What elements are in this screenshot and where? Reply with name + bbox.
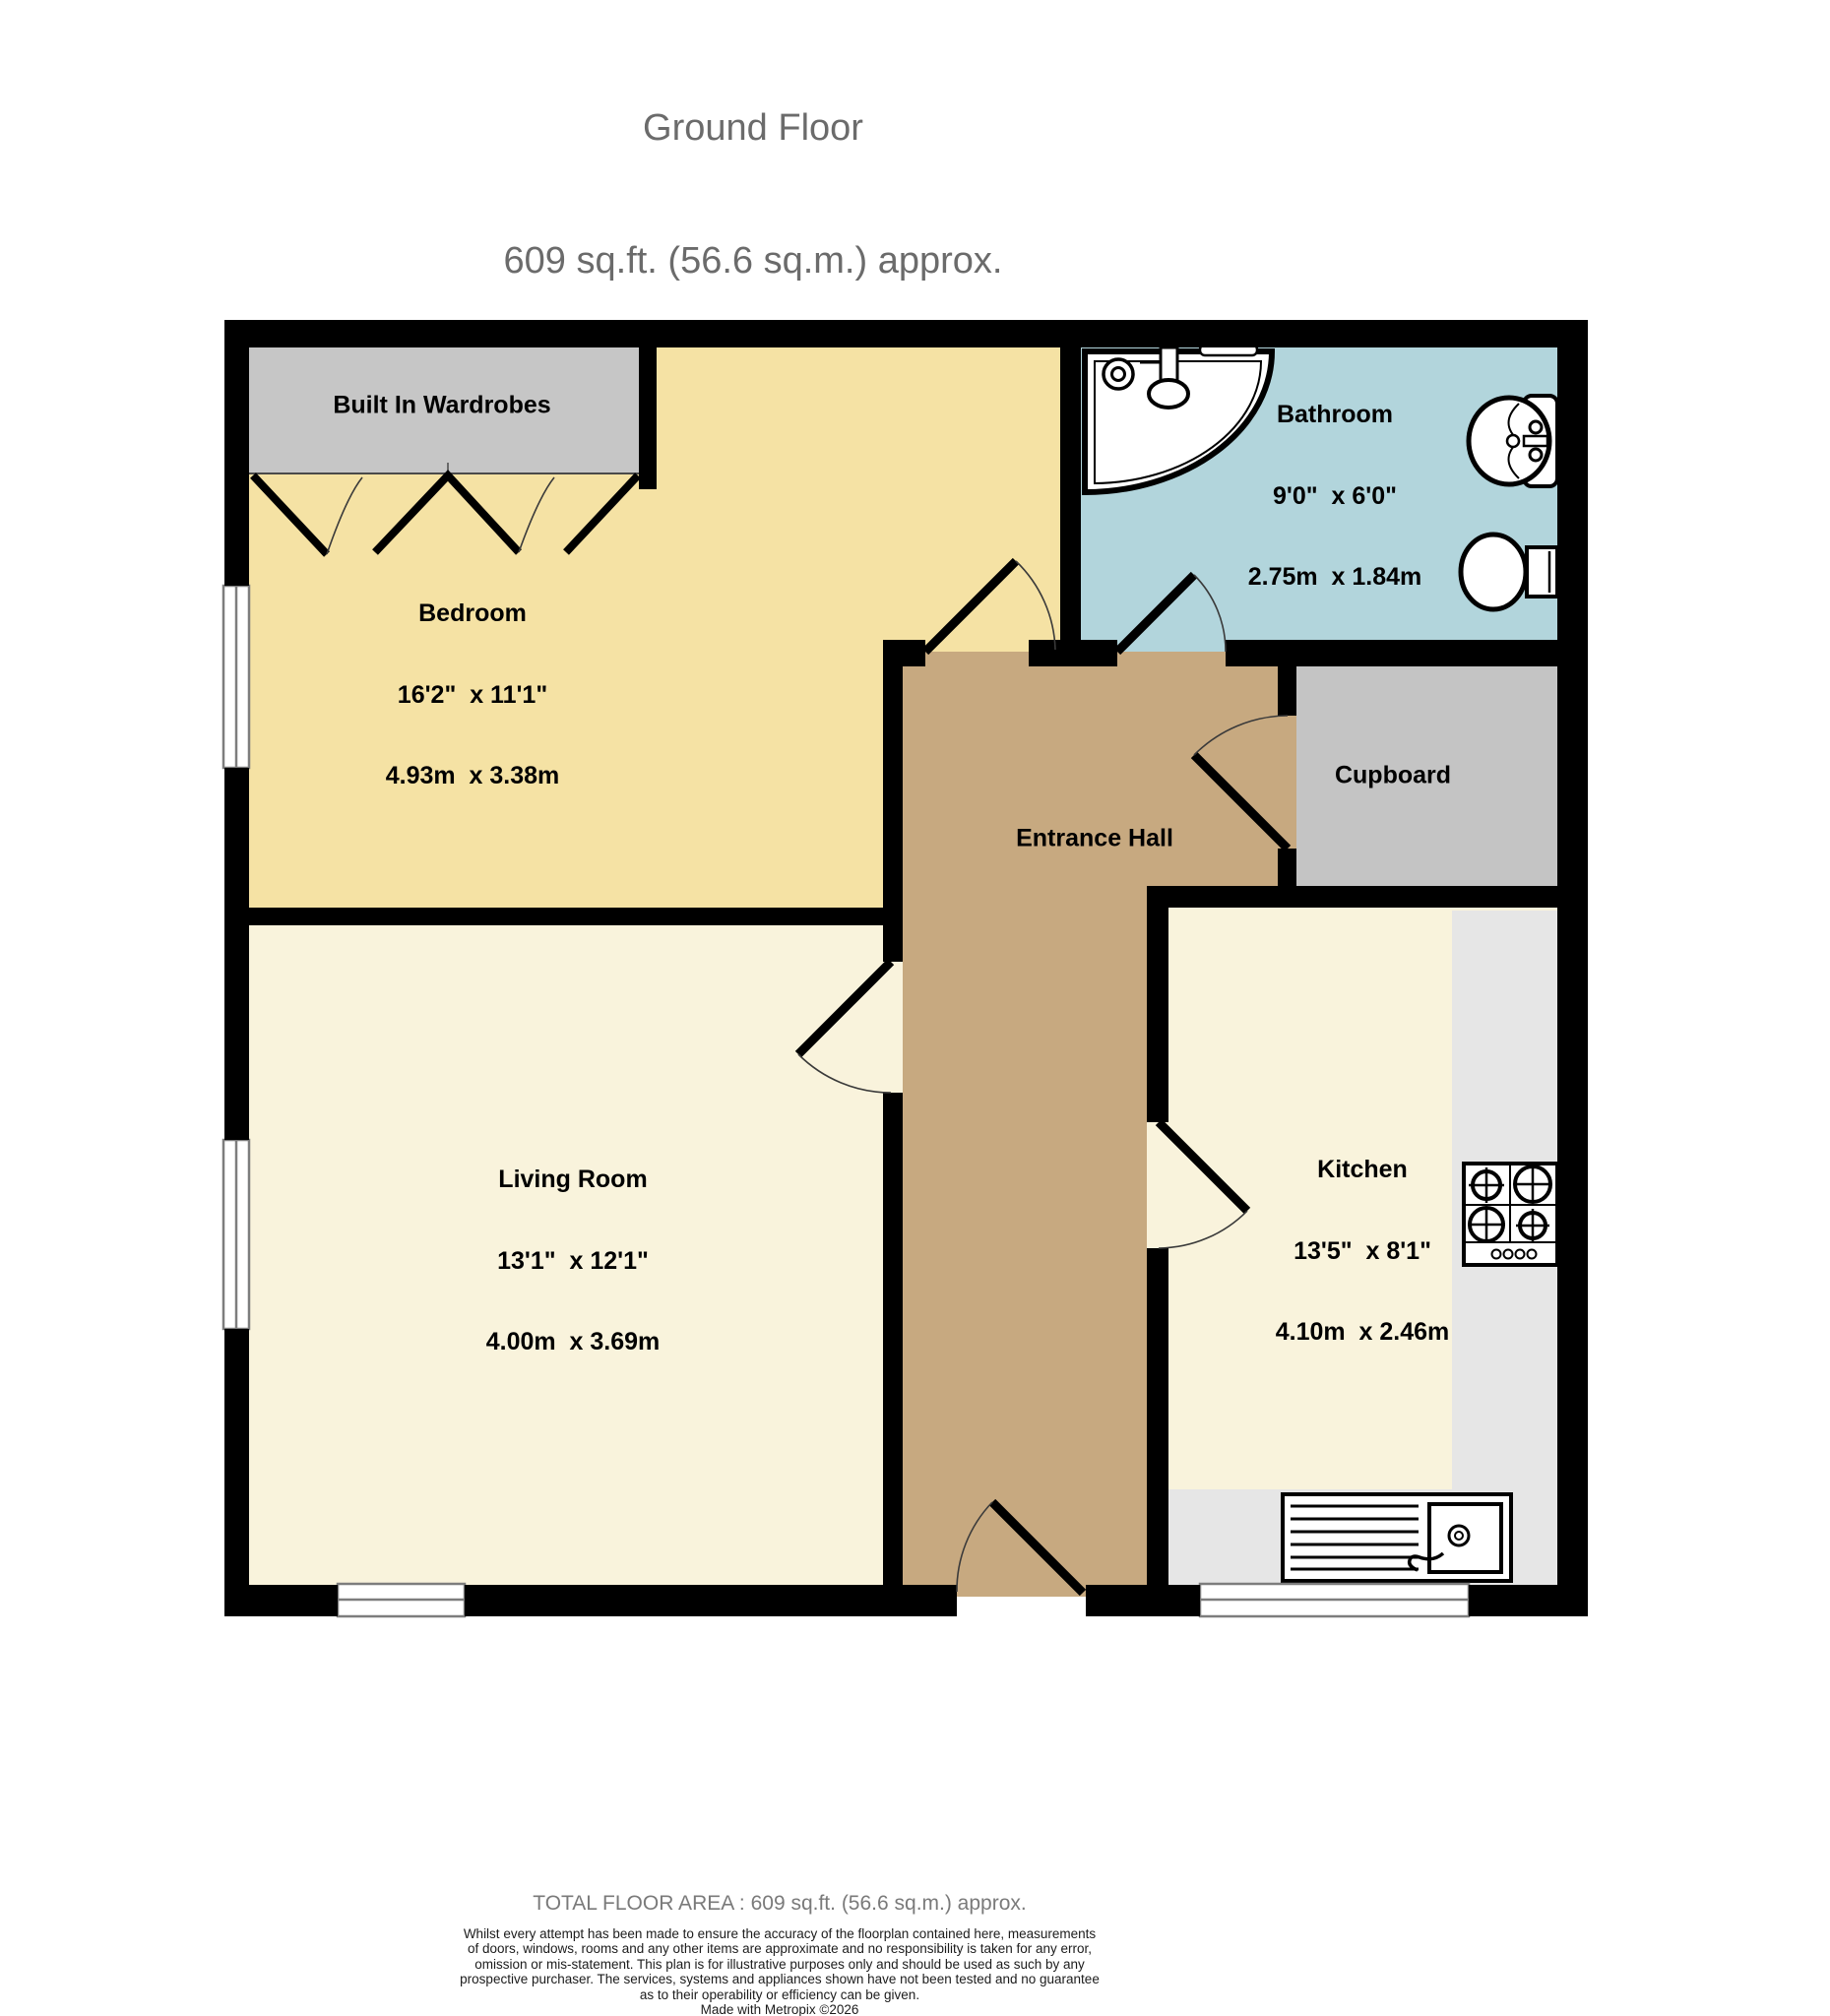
bedroom-dims-m: 4.93m x 3.38m bbox=[386, 763, 560, 790]
entrance-hall-name: Entrance Hall bbox=[1016, 825, 1173, 852]
living-room-name: Living Room bbox=[486, 1166, 661, 1194]
kitchen-bottom-window bbox=[1200, 1584, 1469, 1616]
total-floor-area: TOTAL FLOOR AREA : 609 sq.ft. (56.6 sq.m… bbox=[263, 1892, 1296, 1916]
bathroom-sink-icon bbox=[1469, 396, 1557, 486]
living-room-dims-m: 4.00m x 3.69m bbox=[486, 1329, 661, 1356]
disclaimer-text: Whilst every attempt has been made to en… bbox=[263, 1926, 1296, 2002]
living-room-side-window bbox=[223, 1140, 249, 1329]
toilet-icon bbox=[1461, 535, 1557, 609]
kitchen-name: Kitchen bbox=[1276, 1157, 1450, 1184]
living-room-label: Living Room 13'1" x 12'1" 4.00m x 3.69m bbox=[486, 1112, 661, 1411]
footer: TOTAL FLOOR AREA : 609 sq.ft. (56.6 sq.m… bbox=[263, 1892, 1296, 2016]
bedroom-window bbox=[223, 586, 249, 768]
kitchen-dims-ft: 13'5" x 8'1" bbox=[1276, 1237, 1450, 1265]
wardrobe-name: Built In Wardrobes bbox=[333, 392, 550, 419]
bedroom-label: Bedroom 16'2" x 11'1" 4.93m x 3.38m bbox=[386, 546, 560, 845]
kitchen-label: Kitchen 13'5" x 8'1" 4.10m x 2.46m bbox=[1276, 1102, 1450, 1401]
cupboard-label: Cupboard bbox=[1335, 708, 1451, 844]
front-door-threshold bbox=[957, 1585, 1086, 1597]
wardrobe-label: Built In Wardrobes bbox=[333, 338, 550, 473]
kitchen-sink-icon bbox=[1283, 1494, 1511, 1581]
credit-text: Made with Metropix ©2026 bbox=[263, 2002, 1296, 2016]
living-room-dims-ft: 13'1" x 12'1" bbox=[486, 1247, 661, 1275]
title-line2: 609 sq.ft. (56.6 sq.m.) approx. bbox=[504, 239, 1003, 283]
bathroom-dims-ft: 9'0" x 6'0" bbox=[1248, 482, 1422, 510]
entrance-hall-label: Entrance Hall bbox=[1016, 771, 1173, 907]
living-room-bottom-window bbox=[338, 1584, 465, 1616]
floorplan-page: Ground Floor 609 sq.ft. (56.6 sq.m.) app… bbox=[0, 0, 1830, 2016]
bathroom-label: Bathroom 9'0" x 6'0" 2.75m x 1.84m bbox=[1248, 347, 1422, 646]
bathroom-dims-m: 2.75m x 1.84m bbox=[1248, 564, 1422, 592]
bathroom-name: Bathroom bbox=[1248, 402, 1422, 429]
bedroom-name: Bedroom bbox=[386, 600, 560, 628]
hob-icon bbox=[1464, 1164, 1557, 1265]
bedroom-dims-ft: 16'2" x 11'1" bbox=[386, 681, 560, 709]
title-line1: Ground Floor bbox=[504, 106, 1003, 151]
kitchen-dims-m: 4.10m x 2.46m bbox=[1276, 1319, 1450, 1347]
cupboard-name: Cupboard bbox=[1335, 762, 1451, 789]
page-title: Ground Floor 609 sq.ft. (56.6 sq.m.) app… bbox=[504, 18, 1003, 372]
